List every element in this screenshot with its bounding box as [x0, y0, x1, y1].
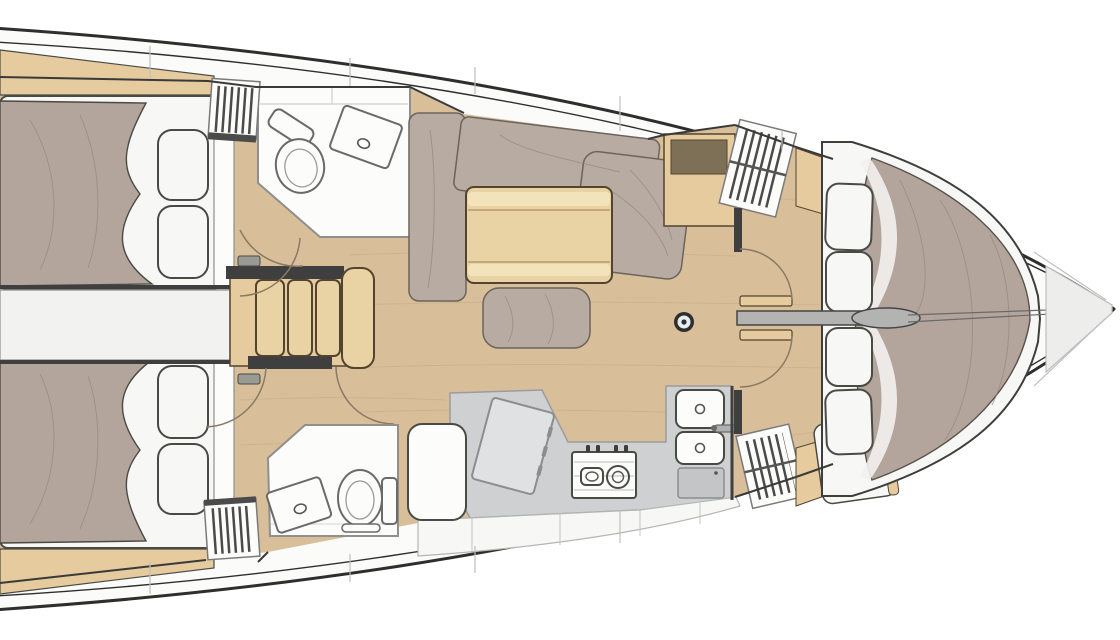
chart-hinge — [549, 427, 552, 437]
pillow — [158, 444, 208, 514]
wardrobe-panel — [214, 356, 234, 506]
louvered-locker-aft-starboard — [204, 496, 260, 559]
wall-bottom — [0, 360, 230, 364]
pillow — [825, 389, 873, 455]
mast-post — [674, 312, 694, 332]
door-hardware — [238, 374, 260, 384]
burner-left — [581, 468, 603, 485]
step-tread — [316, 280, 340, 356]
pillow — [826, 328, 872, 386]
toilet-base — [342, 524, 380, 532]
engine-box — [0, 290, 230, 360]
yacht-floorplan — [0, 0, 1120, 640]
toilet-bowl — [338, 470, 382, 526]
sink-basin — [676, 432, 724, 464]
sink-basin — [676, 390, 724, 428]
chart-hinge — [538, 466, 541, 476]
toilet-tank — [382, 478, 397, 524]
wall-top — [0, 285, 230, 289]
step-tread-landing — [342, 268, 374, 368]
step-tread — [288, 280, 312, 356]
partition-lens — [852, 308, 920, 328]
door-leaf-forward-port — [740, 296, 792, 306]
steps-top-frame — [226, 266, 344, 279]
pillow — [158, 366, 208, 438]
head-starboard — [266, 425, 398, 536]
pillow — [826, 252, 872, 312]
bulkhead-wall-top — [734, 208, 742, 252]
companionway — [226, 266, 374, 369]
ottoman — [483, 288, 590, 348]
door-hardware — [238, 256, 260, 266]
louvered-locker-aft-port — [208, 78, 260, 142]
aft-cabin-port — [0, 50, 234, 290]
pillow — [158, 206, 208, 278]
door-leaf-forward-starboard — [740, 330, 792, 340]
settee-left-arm — [409, 113, 466, 301]
bulkhead-wall-bottom — [734, 390, 742, 434]
wardrobe-panel — [214, 136, 234, 288]
floorplan-svg — [0, 0, 1120, 640]
hatch-dot — [714, 471, 718, 475]
table-leaf-band — [468, 264, 610, 276]
cabinet-dark-lid — [671, 140, 727, 174]
faucet-base — [711, 425, 717, 431]
aft-cabin-starboard — [0, 354, 234, 594]
table-leaf-band — [468, 192, 610, 206]
engine-space — [0, 285, 230, 364]
pillow — [158, 130, 208, 200]
steps-bottom-frame — [248, 356, 332, 369]
pillow — [825, 183, 873, 251]
nav-seat — [408, 424, 466, 520]
saloon-table — [466, 187, 612, 283]
stove — [572, 445, 636, 498]
chart-hinge — [543, 447, 546, 457]
mast-dot — [681, 319, 686, 324]
